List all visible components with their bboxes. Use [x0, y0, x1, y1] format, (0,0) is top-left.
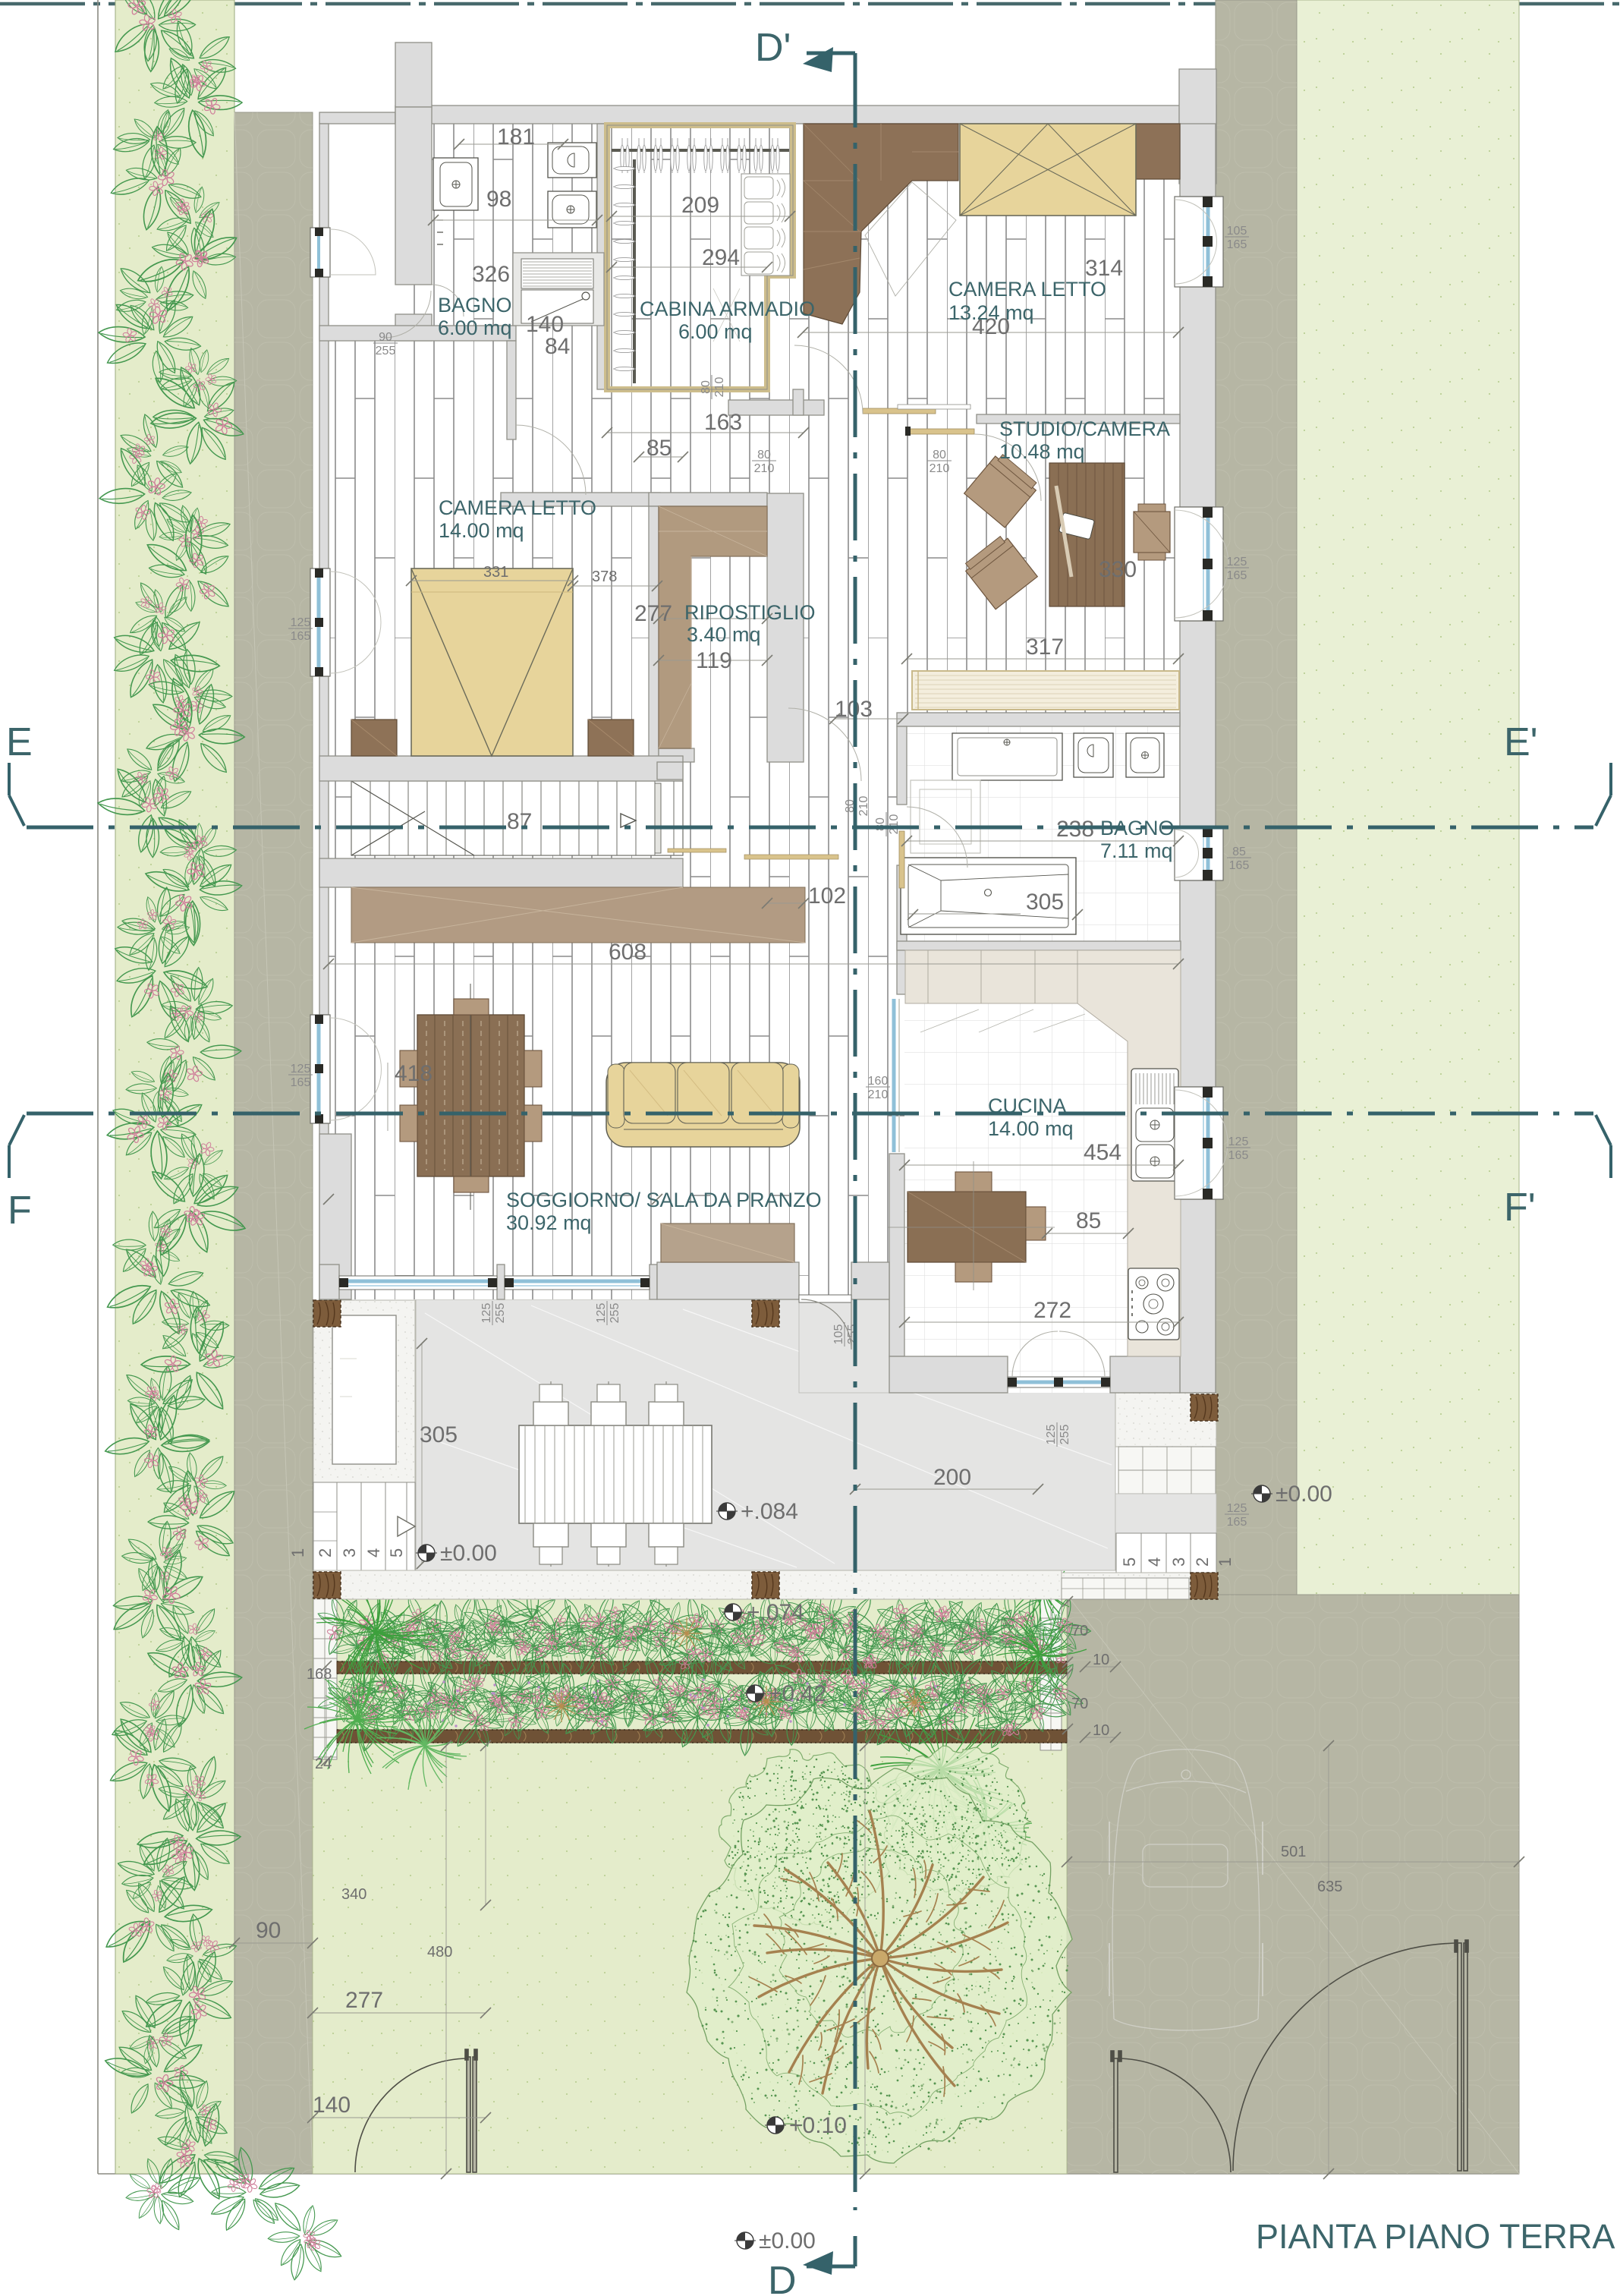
- svg-text:5: 5: [387, 1548, 406, 1557]
- svg-text:30.92 mq: 30.92 mq: [506, 1211, 592, 1234]
- svg-text:3: 3: [340, 1548, 359, 1557]
- svg-text:STUDIO/CAMERA: STUDIO/CAMERA: [999, 417, 1170, 440]
- svg-text:4: 4: [364, 1548, 383, 1557]
- svg-text:635: 635: [1317, 1879, 1342, 1895]
- svg-text:210: 210: [868, 1088, 889, 1101]
- svg-text:125: 125: [291, 1063, 311, 1076]
- svg-text:125: 125: [1227, 1502, 1247, 1515]
- svg-text:2: 2: [1193, 1557, 1212, 1567]
- svg-text:70: 70: [1071, 1623, 1088, 1639]
- svg-text:3: 3: [1169, 1557, 1188, 1567]
- svg-text:125: 125: [291, 616, 311, 629]
- svg-text:378: 378: [592, 568, 617, 585]
- svg-text:F: F: [8, 1189, 32, 1233]
- svg-text:80: 80: [933, 449, 946, 461]
- svg-text:105: 105: [1227, 225, 1247, 238]
- svg-text:PIANTA PIANO TERRA: PIANTA PIANO TERRA: [1256, 2217, 1615, 2256]
- svg-text:163: 163: [704, 410, 742, 435]
- svg-text:D: D: [768, 2259, 797, 2296]
- svg-text:85: 85: [1232, 846, 1246, 858]
- svg-text:1: 1: [288, 1548, 307, 1557]
- svg-text:119: 119: [696, 648, 732, 673]
- svg-text:85: 85: [1076, 1208, 1101, 1233]
- svg-text:294: 294: [702, 245, 740, 270]
- svg-text:90: 90: [256, 1918, 281, 1943]
- svg-text:2: 2: [316, 1548, 335, 1557]
- svg-text:125: 125: [1045, 1425, 1058, 1445]
- svg-text:501: 501: [1281, 1844, 1306, 1860]
- svg-text:RIPOSTIGLIO: RIPOSTIGLIO: [684, 601, 816, 624]
- svg-text:165: 165: [291, 1076, 311, 1089]
- svg-text:125: 125: [1228, 1135, 1249, 1148]
- svg-text:140: 140: [313, 2093, 351, 2118]
- svg-text:418: 418: [395, 1061, 433, 1086]
- svg-text:165: 165: [1227, 238, 1247, 251]
- svg-text:SOGGIORNO/ SALA DA PRANZO: SOGGIORNO/ SALA DA PRANZO: [506, 1189, 822, 1211]
- svg-text:210: 210: [754, 462, 775, 475]
- svg-text:6.00 mq: 6.00 mq: [438, 317, 512, 339]
- svg-text:272: 272: [1033, 1298, 1071, 1323]
- svg-text:277: 277: [345, 1988, 383, 2013]
- svg-text:3.40 mq: 3.40 mq: [687, 623, 761, 646]
- svg-text:210: 210: [713, 377, 726, 398]
- svg-text:+0.42: +0.42: [769, 1681, 826, 1706]
- svg-text:125: 125: [595, 1303, 608, 1324]
- svg-text:277: 277: [634, 601, 672, 626]
- svg-text:90: 90: [379, 331, 392, 344]
- svg-text:210: 210: [888, 814, 901, 835]
- svg-text:14.00 mq: 14.00 mq: [439, 519, 524, 542]
- svg-text:340: 340: [341, 1886, 366, 1903]
- svg-text:CAMERA LETTO: CAMERA LETTO: [948, 278, 1106, 301]
- svg-text:D': D': [755, 26, 791, 70]
- svg-text:326: 326: [472, 262, 510, 287]
- svg-text:165: 165: [1227, 1516, 1247, 1529]
- svg-text:87: 87: [507, 809, 532, 834]
- svg-text:14.00 mq: 14.00 mq: [988, 1117, 1074, 1140]
- svg-text:125: 125: [480, 1303, 493, 1324]
- svg-text:255: 255: [609, 1303, 621, 1324]
- svg-text:330: 330: [1099, 557, 1137, 582]
- svg-text:1: 1: [1216, 1557, 1235, 1567]
- svg-text:210: 210: [930, 462, 950, 475]
- svg-text:480: 480: [427, 1944, 452, 1961]
- svg-text:209: 209: [681, 193, 719, 218]
- svg-text:102: 102: [808, 883, 846, 909]
- svg-text:80: 80: [757, 449, 771, 461]
- svg-text:165: 165: [291, 630, 311, 643]
- svg-text:±0.00: ±0.00: [440, 1541, 497, 1566]
- svg-text:165: 165: [1229, 859, 1250, 872]
- svg-text:24: 24: [315, 1756, 332, 1772]
- svg-text:200: 200: [933, 1465, 971, 1490]
- svg-text:+0.10: +0.10: [789, 2113, 847, 2138]
- svg-text:165: 165: [1227, 569, 1247, 582]
- svg-text:165: 165: [1228, 1149, 1249, 1162]
- svg-text:BAGNO: BAGNO: [438, 294, 512, 317]
- svg-text:454: 454: [1084, 1140, 1121, 1165]
- svg-text:±0.00: ±0.00: [759, 2228, 816, 2253]
- svg-text:255: 255: [494, 1303, 507, 1324]
- svg-text:7.11 mq: 7.11 mq: [1100, 839, 1173, 862]
- svg-text:13.24 mq: 13.24 mq: [948, 301, 1034, 324]
- svg-text:10: 10: [1093, 1652, 1109, 1668]
- svg-text:305: 305: [420, 1422, 458, 1447]
- svg-text:F': F': [1504, 1186, 1536, 1230]
- svg-text:E: E: [6, 720, 33, 764]
- svg-text:125: 125: [1227, 556, 1247, 568]
- svg-text:4: 4: [1145, 1557, 1164, 1567]
- svg-text:331: 331: [483, 564, 508, 581]
- svg-text:+.084: +.084: [741, 1499, 798, 1524]
- svg-text:85: 85: [646, 436, 672, 461]
- svg-text:168: 168: [307, 1666, 332, 1683]
- svg-text:210: 210: [857, 796, 870, 817]
- svg-text:70: 70: [1071, 1696, 1088, 1712]
- svg-text:105: 105: [832, 1324, 845, 1345]
- svg-text:98: 98: [486, 187, 511, 212]
- svg-text:80: 80: [700, 380, 712, 394]
- svg-text:305: 305: [1026, 890, 1064, 915]
- svg-text:CABINA ARMADIO: CABINA ARMADIO: [640, 298, 815, 320]
- svg-text:84: 84: [545, 334, 570, 359]
- svg-text:255: 255: [1059, 1425, 1071, 1445]
- svg-text:317: 317: [1026, 635, 1064, 660]
- svg-text:608: 608: [609, 940, 646, 965]
- svg-text:E': E': [1504, 720, 1538, 764]
- svg-text:6.00 mq: 6.00 mq: [678, 320, 753, 343]
- svg-text:10: 10: [1093, 1722, 1109, 1739]
- svg-text:5: 5: [1120, 1557, 1139, 1567]
- svg-text:CAMERA LETTO: CAMERA LETTO: [439, 496, 596, 519]
- svg-text:160: 160: [868, 1075, 889, 1088]
- svg-text:255: 255: [376, 345, 396, 357]
- svg-text:+.074: +.074: [747, 1600, 804, 1625]
- svg-text:10.48 mq: 10.48 mq: [999, 440, 1085, 463]
- svg-text:±0.00: ±0.00: [1276, 1482, 1332, 1507]
- svg-text:181: 181: [497, 124, 535, 150]
